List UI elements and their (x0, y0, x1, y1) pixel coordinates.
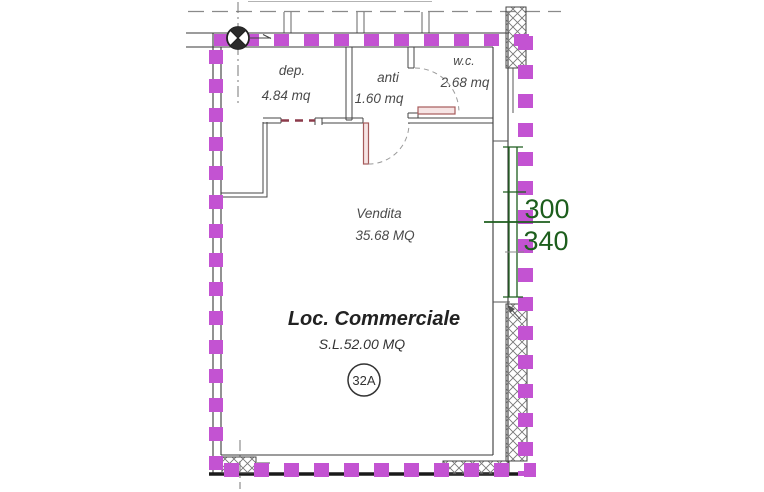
room-anti-label: anti (377, 70, 400, 85)
floor-plan-screenshot: 300 340 dep. 4.84 mq anti 1.60 mq w.c. 2… (0, 0, 764, 492)
room-vendita-label: Vendita (356, 206, 402, 221)
highlight-top (214, 34, 536, 46)
room-wc-label: w.c. (453, 54, 475, 68)
highlight-bottom (224, 463, 536, 477)
unit-surface: S.L.52.00 MQ (319, 336, 405, 352)
room-dep-area: 4.84 mq (262, 88, 311, 103)
highlight-left (209, 50, 223, 472)
room-wc-area: 2.68 mq (440, 75, 490, 90)
room-anti-area: 1.60 mq (355, 91, 404, 106)
window-width-value: 300 (524, 194, 569, 224)
door-leaf-anti (364, 123, 369, 164)
highlight-right (518, 36, 533, 476)
room-vendita-area: 35.68 MQ (355, 228, 415, 243)
floor-plan-drawing: 300 340 dep. 4.84 mq anti 1.60 mq w.c. 2… (0, 0, 764, 492)
window-height-value: 340 (523, 226, 568, 256)
room-dep-label: dep. (279, 63, 305, 78)
door-leaf-wc (418, 107, 455, 114)
unit-number: 32A (352, 373, 375, 388)
unit-name: Loc. Commerciale (288, 308, 460, 330)
